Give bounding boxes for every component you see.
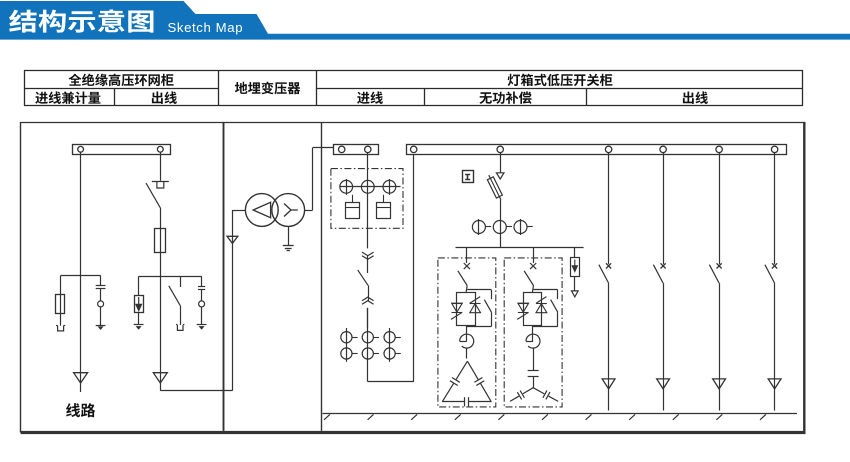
svg-text:Sketch Map: Sketch Map xyxy=(168,20,244,35)
